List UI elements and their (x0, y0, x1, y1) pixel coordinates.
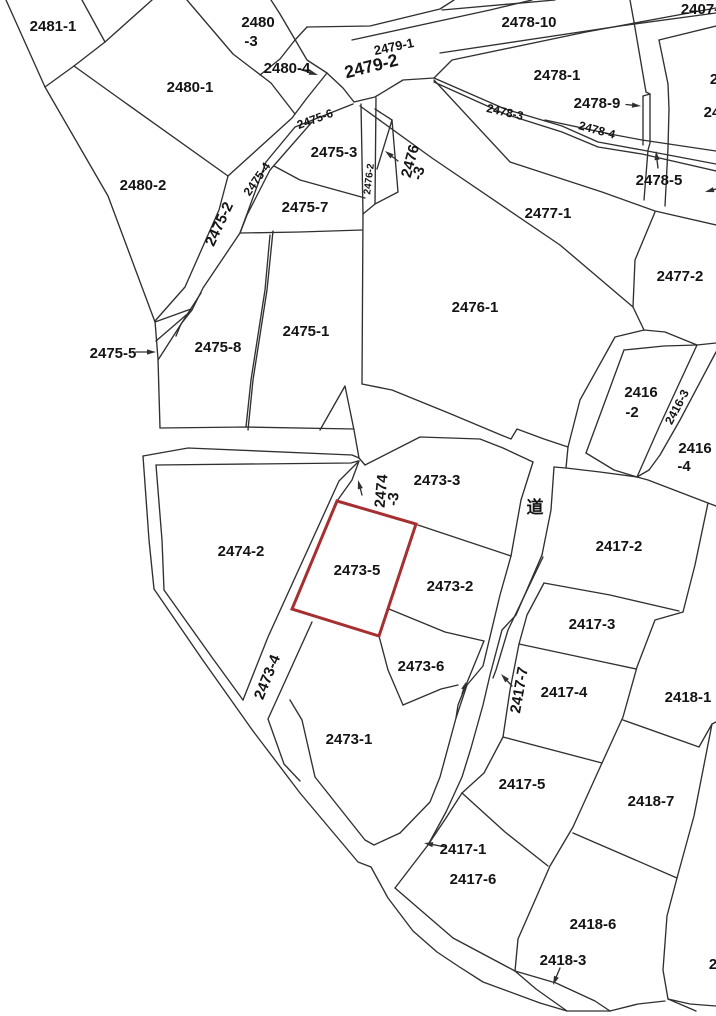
svg-text:2477-1: 2477-1 (525, 205, 572, 222)
svg-text:2476-1: 2476-1 (452, 299, 499, 316)
svg-text:2473-6: 2473-6 (398, 658, 445, 675)
svg-text:-3: -3 (244, 33, 257, 50)
svg-text:2475-8: 2475-8 (195, 339, 242, 356)
svg-text:道: 道 (527, 497, 544, 517)
svg-text:2475-5: 2475-5 (90, 345, 137, 362)
svg-text:2475-7: 2475-7 (282, 199, 329, 216)
svg-text:2417-2: 2417-2 (596, 538, 643, 555)
svg-text:2480-4: 2480-4 (264, 60, 311, 77)
svg-text:2417-5: 2417-5 (499, 776, 546, 793)
svg-text:2477-2: 2477-2 (657, 268, 704, 285)
svg-text:-4: -4 (677, 458, 691, 475)
svg-text:2417-3: 2417-3 (569, 616, 616, 633)
svg-text:2480-1: 2480-1 (167, 79, 214, 96)
svg-text:2478-5: 2478-5 (636, 172, 683, 189)
svg-text:2473-5: 2473-5 (334, 562, 381, 579)
svg-text:2478-1: 2478-1 (534, 67, 581, 84)
svg-text:2418-6: 2418-6 (570, 916, 617, 933)
svg-text:2: 2 (710, 71, 716, 88)
svg-text:2478-9: 2478-9 (574, 95, 621, 112)
svg-text:2417-4: 2417-4 (541, 684, 588, 701)
svg-text:-3: -3 (384, 492, 402, 507)
svg-text:2480: 2480 (241, 14, 274, 31)
svg-text:2478-10: 2478-10 (501, 14, 556, 31)
svg-text:2416: 2416 (624, 384, 657, 401)
svg-text:2418-3: 2418-3 (540, 952, 587, 969)
svg-text:2: 2 (709, 956, 716, 973)
svg-text:2417-6: 2417-6 (450, 871, 497, 888)
svg-text:2480-2: 2480-2 (120, 177, 167, 194)
svg-text:24: 24 (704, 104, 716, 121)
svg-text:2475-1: 2475-1 (283, 323, 330, 340)
svg-text:2473-2: 2473-2 (427, 578, 474, 595)
svg-text:2418-1: 2418-1 (665, 689, 712, 706)
svg-text:2474-2: 2474-2 (218, 543, 265, 560)
svg-text:-2: -2 (625, 404, 638, 421)
svg-text:2473-3: 2473-3 (414, 472, 461, 489)
svg-text:2407-: 2407- (681, 1, 716, 18)
svg-text:2481-1: 2481-1 (30, 18, 77, 35)
svg-text:2473-1: 2473-1 (326, 731, 373, 748)
svg-text:2416: 2416 (678, 440, 711, 457)
svg-text:2418-7: 2418-7 (628, 793, 675, 810)
svg-text:2475-3: 2475-3 (311, 144, 358, 161)
svg-text:2417-1: 2417-1 (440, 841, 487, 858)
